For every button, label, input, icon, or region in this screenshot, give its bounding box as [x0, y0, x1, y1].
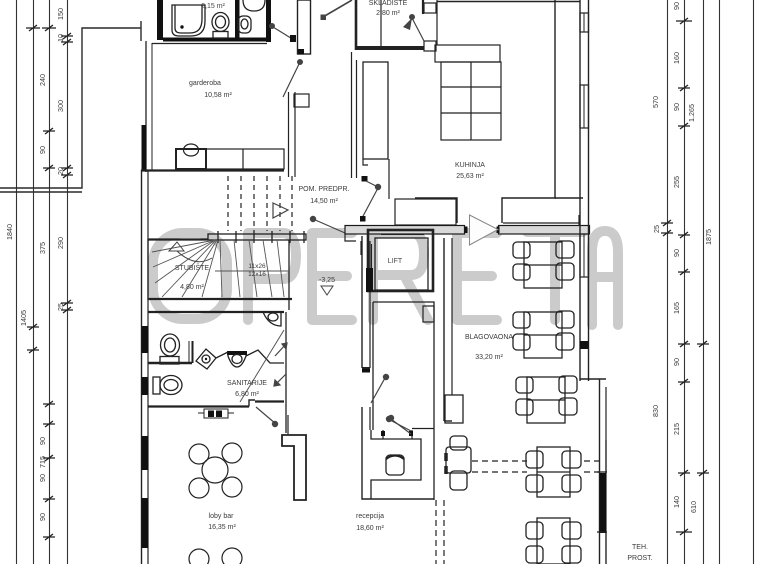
- svg-text:715: 715: [38, 456, 47, 468]
- svg-text:90: 90: [672, 103, 681, 111]
- svg-text:140: 140: [672, 496, 681, 508]
- svg-text:25,63 m²: 25,63 m²: [456, 173, 484, 180]
- svg-text:570: 570: [651, 96, 660, 108]
- svg-text:33,20 m²: 33,20 m²: [475, 354, 503, 361]
- svg-text:90: 90: [38, 474, 47, 482]
- svg-text:11x26: 11x26: [248, 263, 266, 270]
- svg-text:215: 215: [672, 423, 681, 435]
- svg-text:255: 255: [672, 176, 681, 188]
- svg-text:90: 90: [672, 358, 681, 366]
- svg-text:160: 160: [672, 52, 681, 64]
- svg-text:STUBIŠTE: STUBIŠTE: [175, 263, 210, 272]
- svg-text:garderoba: garderoba: [189, 80, 221, 87]
- svg-text:loby bar: loby bar: [209, 513, 235, 520]
- svg-text:25: 25: [56, 303, 65, 311]
- svg-text:90: 90: [38, 513, 47, 521]
- svg-text:KUHINJA: KUHINJA: [455, 162, 485, 169]
- svg-text:1405: 1405: [19, 310, 28, 326]
- svg-text:165: 165: [672, 302, 681, 314]
- svg-text:240: 240: [38, 74, 47, 86]
- svg-text:POM. PREDPR.: POM. PREDPR.: [299, 186, 350, 193]
- svg-text:90: 90: [672, 249, 681, 257]
- svg-text:16,35 m²: 16,35 m²: [208, 524, 236, 531]
- svg-text:18,60 m²: 18,60 m²: [356, 525, 384, 532]
- svg-text:14,50 m²: 14,50 m²: [310, 198, 338, 205]
- svg-text:150: 150: [56, 8, 65, 20]
- svg-text:6,80 m²: 6,80 m²: [235, 391, 259, 398]
- svg-text:1.265: 1.265: [687, 104, 696, 122]
- svg-text:4,80 m²: 4,80 m²: [180, 284, 204, 291]
- svg-text:LIFT: LIFT: [388, 258, 403, 265]
- svg-text:1875: 1875: [704, 229, 713, 245]
- svg-text:-3,25: -3,25: [319, 277, 335, 284]
- svg-text:290: 290: [56, 237, 65, 249]
- svg-text:610: 610: [689, 501, 698, 513]
- svg-text:300: 300: [56, 100, 65, 112]
- svg-text:SANITARIJE: SANITARIJE: [227, 380, 267, 387]
- svg-text:25: 25: [652, 225, 661, 233]
- svg-text:BLAGOVAONA: BLAGOVAONA: [465, 334, 513, 341]
- svg-text:90: 90: [672, 2, 681, 10]
- svg-text:12x16: 12x16: [248, 271, 266, 278]
- svg-text:90: 90: [38, 437, 47, 445]
- svg-text:10,58 m²: 10,58 m²: [204, 92, 232, 99]
- svg-text:375: 375: [38, 242, 47, 254]
- svg-text:830: 830: [651, 405, 660, 417]
- svg-text:SKLADIŠTE: SKLADIŠTE: [369, 0, 408, 7]
- svg-text:1840: 1840: [5, 224, 14, 240]
- svg-text:10: 10: [56, 34, 65, 42]
- svg-text:2,15 m²: 2,15 m²: [201, 3, 225, 10]
- svg-text:20: 20: [56, 167, 65, 175]
- svg-text:recepcija: recepcija: [356, 513, 384, 520]
- svg-text:90: 90: [38, 146, 47, 154]
- svg-text:2,80 m²: 2,80 m²: [376, 10, 400, 17]
- svg-text:PROST.: PROST.: [627, 555, 652, 562]
- svg-text:TEH.: TEH.: [632, 544, 648, 551]
